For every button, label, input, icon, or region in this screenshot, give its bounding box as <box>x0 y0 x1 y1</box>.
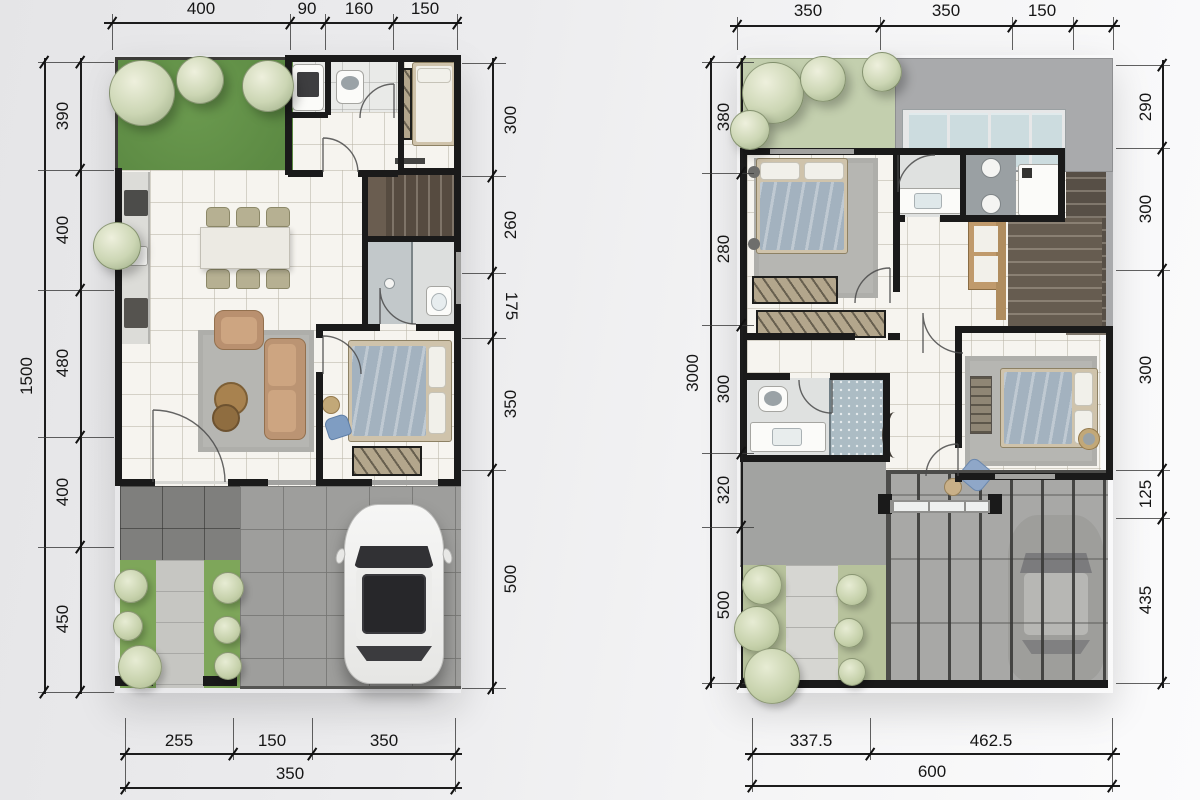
dim-extension-line <box>462 338 506 339</box>
wall <box>285 55 461 62</box>
wall <box>830 373 890 380</box>
dim-label: 150 <box>258 731 286 751</box>
dim-label: 150 <box>1028 1 1056 21</box>
washer-dial <box>1022 168 1032 178</box>
dim-label: 280 <box>714 235 734 263</box>
dim-extension-line <box>702 173 754 174</box>
dim-line <box>710 58 712 688</box>
dim-extension-line <box>462 688 506 689</box>
pillow <box>428 346 446 388</box>
dim-line <box>104 22 462 24</box>
wall <box>740 455 890 462</box>
sofa-cushion <box>268 390 296 432</box>
sofa-cushion <box>268 344 296 386</box>
bush-icon <box>118 645 162 689</box>
bed-blanket <box>760 182 844 250</box>
dim-label: 350 <box>501 390 521 418</box>
window <box>770 149 854 154</box>
pillow <box>417 68 451 83</box>
dim-label: 300 <box>714 375 734 403</box>
dim-extension-line <box>38 62 114 63</box>
bedside-stool <box>748 238 760 250</box>
dim-label: 260 <box>501 211 521 239</box>
stair-landing <box>368 175 386 236</box>
wardrobe <box>752 276 838 304</box>
wall <box>398 55 404 173</box>
wall <box>1106 326 1113 480</box>
cabinet-shelf <box>974 256 998 282</box>
wall <box>316 331 323 338</box>
dim-extension-line <box>462 470 506 471</box>
pillow <box>1074 372 1093 406</box>
toilet-bowl <box>341 76 359 90</box>
walk-path <box>156 560 204 688</box>
dim-label: 400 <box>53 478 73 506</box>
cabinet-shelf <box>974 226 998 252</box>
dim-extension-line <box>702 325 754 326</box>
dim-label: 500 <box>501 565 521 593</box>
bedroom-window <box>372 480 438 485</box>
dim-line <box>745 785 1120 787</box>
bedside-stool <box>748 166 760 178</box>
bed-blanket <box>1004 372 1072 444</box>
wall-stub <box>988 494 1002 514</box>
bush-icon <box>212 572 244 604</box>
wardrobe <box>352 446 422 476</box>
wall <box>288 112 328 118</box>
lower-roof <box>740 462 886 567</box>
bed-blanket <box>352 346 426 436</box>
wall <box>888 333 900 340</box>
wall <box>316 372 323 486</box>
bush-icon <box>836 574 868 606</box>
dining-chair <box>266 207 290 227</box>
bush-icon <box>734 606 780 652</box>
dim-label: 160 <box>345 0 373 19</box>
bath-window <box>456 252 461 304</box>
bowl <box>1083 433 1095 445</box>
sliding-door-window <box>268 480 316 485</box>
wall <box>398 168 461 175</box>
bush-icon <box>742 565 782 605</box>
dim-label: 400 <box>53 216 73 244</box>
wall <box>362 172 368 324</box>
dim-label: 337.5 <box>790 731 833 751</box>
wall <box>438 479 461 486</box>
dim-label: 125 <box>1136 480 1156 508</box>
dim-label: 320 <box>714 476 734 504</box>
wall <box>325 55 331 115</box>
plot-edge <box>240 686 461 689</box>
round-sink <box>981 194 1001 214</box>
wall <box>740 373 790 380</box>
dim-label: 290 <box>1136 93 1156 121</box>
dim-extension-line <box>462 176 506 177</box>
wall <box>228 479 268 486</box>
sink <box>772 428 802 446</box>
dim-label: 600 <box>918 762 946 782</box>
dim-extension-line <box>38 547 114 548</box>
bush-icon <box>834 618 864 648</box>
toilet-bowl <box>764 391 782 406</box>
sink <box>914 193 942 209</box>
dim-line <box>745 753 1120 755</box>
bush-icon <box>114 569 148 603</box>
dim-label: 300 <box>1136 195 1156 223</box>
washer-screen <box>297 72 319 97</box>
shower-glass <box>411 242 413 324</box>
car-windshield <box>354 546 434 568</box>
balcony-window <box>890 500 990 513</box>
dim-label: 150 <box>411 0 439 19</box>
tree-icon <box>176 56 224 104</box>
wall <box>940 215 1065 222</box>
dim-label: 1500 <box>17 357 37 395</box>
cooktop <box>124 190 148 216</box>
dim-line <box>741 58 743 688</box>
window <box>995 474 1055 479</box>
bush-icon <box>838 658 866 686</box>
tree-icon <box>93 222 141 270</box>
dim-label: 350 <box>794 1 822 21</box>
dim-label: 300 <box>501 106 521 134</box>
door-threshold <box>155 481 228 484</box>
wall <box>960 155 966 215</box>
dim-label: 3000 <box>683 354 703 392</box>
wall <box>416 324 461 331</box>
shower <box>829 378 885 458</box>
round-sink <box>981 158 1001 178</box>
dim-label: 350 <box>932 1 960 21</box>
dim-line <box>120 753 462 755</box>
shower-drain <box>384 278 395 289</box>
dining-chair <box>266 269 290 289</box>
coffee-table-small <box>212 404 240 432</box>
dim-extension-line <box>702 527 754 528</box>
dim-label: 90 <box>298 0 317 19</box>
floorplan-canvas: 400 90 160 150 1500 390 400 480 400 450 … <box>0 0 1200 800</box>
dim-label: 390 <box>53 102 73 130</box>
tree-icon <box>109 60 175 126</box>
dim-line <box>730 25 1120 27</box>
dim-extension-line <box>38 437 114 438</box>
dim-extension-line <box>462 273 506 274</box>
dining-chair <box>206 269 230 289</box>
dim-line <box>120 787 462 789</box>
tree-icon <box>862 52 902 92</box>
car-sunroof <box>362 574 426 634</box>
pillow <box>804 162 844 180</box>
dim-line <box>492 58 494 694</box>
wall <box>955 333 962 448</box>
dim-label: 450 <box>53 605 73 633</box>
dim-extension-line <box>462 63 506 64</box>
wall <box>115 479 155 486</box>
dim-line <box>1162 60 1164 688</box>
wall <box>883 373 890 462</box>
bush-icon <box>214 652 242 680</box>
shower-glass <box>829 378 831 458</box>
wall <box>893 215 905 222</box>
wall <box>740 333 855 340</box>
dim-extension-line <box>38 692 114 693</box>
wall <box>288 170 323 177</box>
entry-stoop <box>120 486 240 560</box>
oven <box>124 298 148 328</box>
tree-icon <box>800 56 846 102</box>
dim-label: 462.5 <box>970 731 1013 751</box>
basin-bowl <box>431 293 447 311</box>
side-table <box>322 396 340 414</box>
wall <box>1058 148 1065 222</box>
dining-chair <box>236 207 260 227</box>
wall <box>316 479 372 486</box>
dim-extension-line <box>702 453 754 454</box>
bush-icon <box>113 611 143 641</box>
dining-table <box>200 227 290 269</box>
dim-line <box>80 58 82 694</box>
armchair-seat <box>221 317 257 344</box>
dim-label: 255 <box>165 731 193 751</box>
dim-line <box>44 58 46 694</box>
dining-chair <box>206 207 230 227</box>
dim-label: 300 <box>1136 356 1156 384</box>
dining-chair <box>236 269 260 289</box>
car-rear-window <box>356 646 432 661</box>
tree-icon <box>730 110 770 150</box>
wall <box>115 168 122 486</box>
pillow <box>428 392 446 434</box>
dim-label: 480 <box>53 349 73 377</box>
dim-extension-line <box>38 170 114 171</box>
wall <box>316 324 380 331</box>
dim-label: 175 <box>501 292 521 320</box>
dim-label: 400 <box>187 0 215 19</box>
dim-label: 500 <box>714 591 734 619</box>
dim-extension-line <box>38 290 114 291</box>
stairwell <box>1008 218 1102 328</box>
dim-label: 350 <box>276 764 304 784</box>
bush-icon <box>213 616 241 644</box>
bench <box>970 376 992 434</box>
tree-icon <box>242 60 294 112</box>
bush-icon <box>744 648 800 704</box>
wall <box>362 236 461 242</box>
pillow <box>760 162 800 180</box>
dim-label: 350 <box>370 731 398 751</box>
dim-label: 435 <box>1136 586 1156 614</box>
wall <box>955 326 1113 333</box>
